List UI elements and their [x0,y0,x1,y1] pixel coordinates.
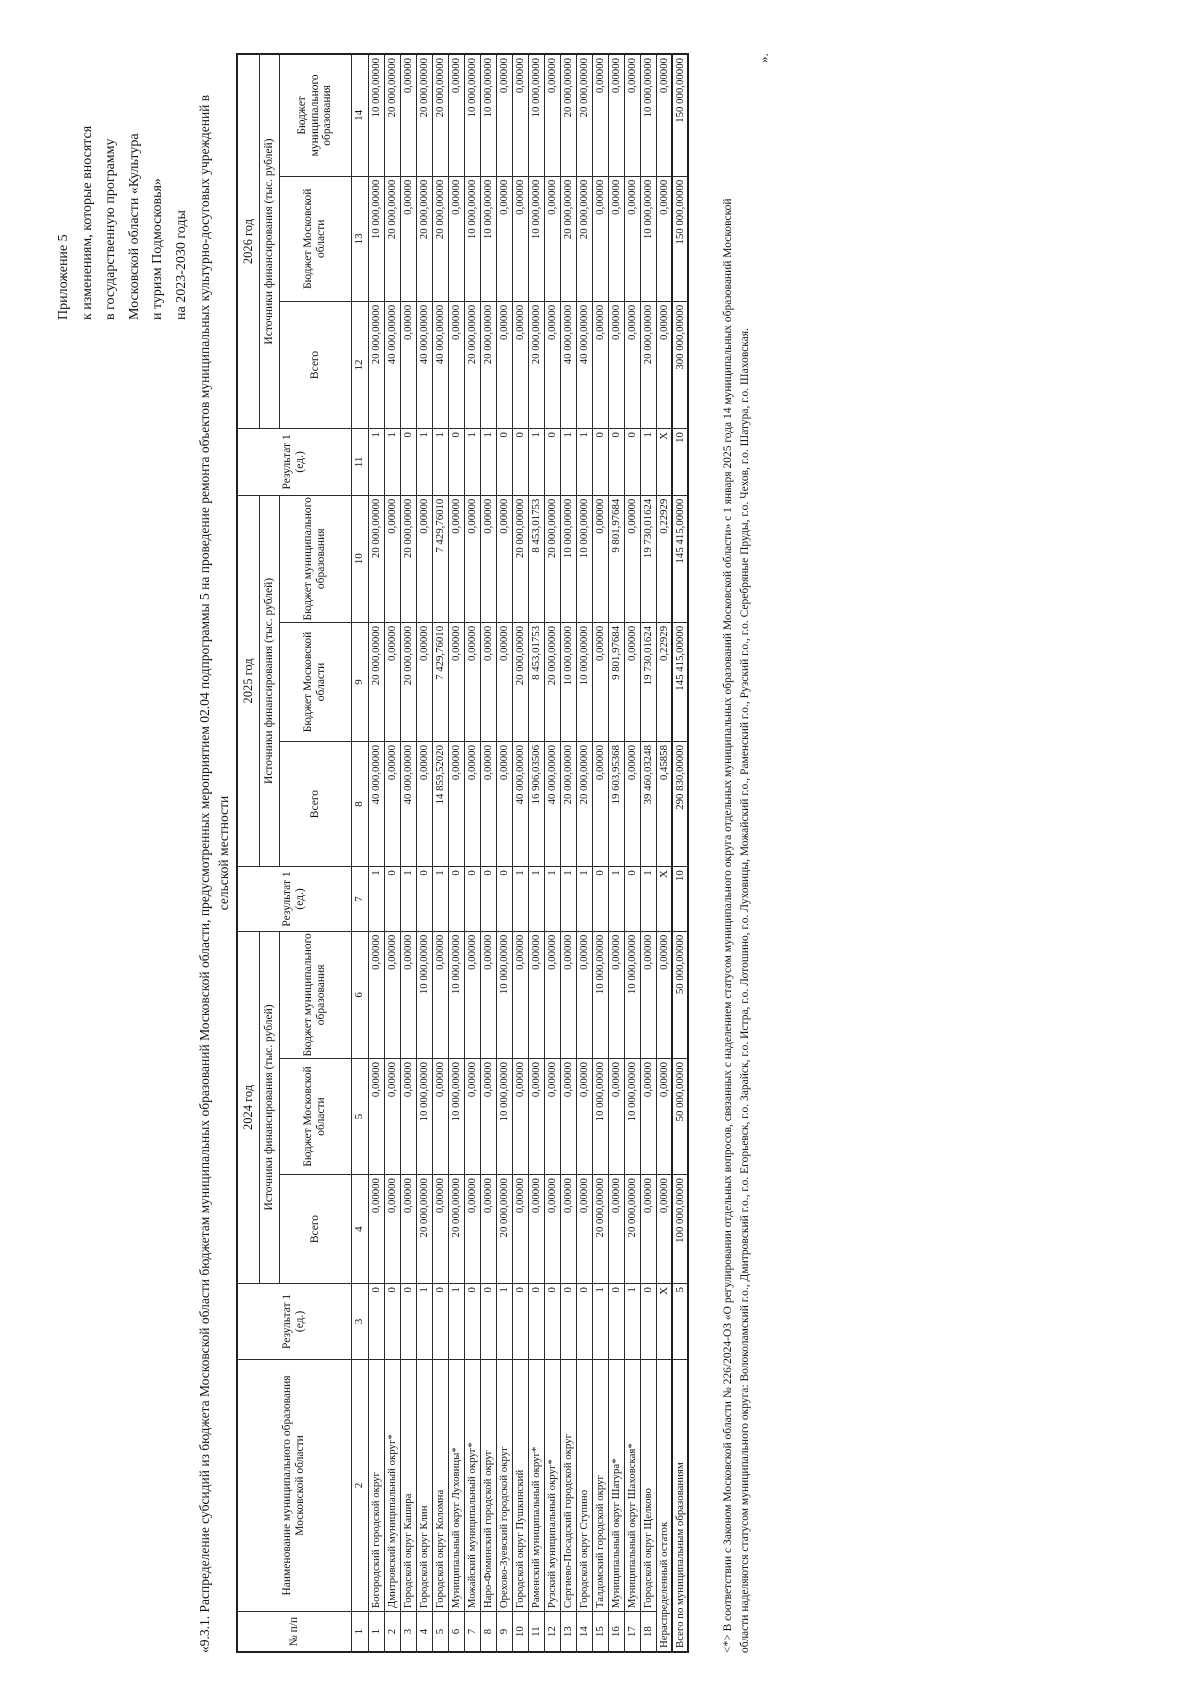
cell-value: 0,00000 [544,176,560,301]
appendix-line: в государственную программу [99,126,123,320]
cell-value: 1 [560,867,576,932]
cell-value: 0,00000 [656,54,672,176]
cell-value: 20 000,00000 [480,301,496,428]
appendix-line: на 2023-2030 годы [170,126,194,320]
municipality-name: Богородский городской округ [368,1359,384,1611]
cell-value: 1 [624,1284,640,1360]
cell-value: 0,00000 [432,1058,448,1174]
cell-value: 0,00000 [480,931,496,1058]
cell-value: 0 [544,429,560,496]
municipality-name: Городской округ Коломна [432,1359,448,1611]
cell-value: 0,22929 [656,495,672,622]
appendix-line: и туризм Подмосковья» [146,126,170,320]
cell-value: 0,00000 [560,1175,576,1284]
row-number: 14 [576,1612,592,1652]
row-number: 17 [624,1612,640,1652]
cell-value: 10 000,00000 [576,495,592,622]
municipality-name: Наро-Фоминский городской округ [480,1359,496,1611]
row-number: 11 [528,1612,544,1652]
cell-value: 0,00000 [512,301,528,428]
row-number: 2 [384,1612,400,1652]
table-row: 14Городской округ Ступино00,000000,00000… [576,54,592,1652]
cell-value: 0,00000 [624,54,640,176]
row-number: 8 [480,1612,496,1652]
col-header-total-2026: Всего [279,301,351,428]
cell-value: 0,00000 [368,931,384,1058]
cell-value: 10 000,00000 [560,495,576,622]
cell-value: 0,00000 [400,54,416,176]
cell-value: 0 [496,867,512,932]
cell-value: 10 000,00000 [592,1058,608,1174]
cell-value: 20 000,00000 [496,1175,512,1284]
table-header: № п/п Наименование муниципального образо… [237,54,368,1652]
cell-value: 1 [512,867,528,932]
cell-value: 10 000,00000 [496,1058,512,1174]
cell-value: 0,00000 [640,1058,656,1174]
cell-value: 0,00000 [464,742,480,867]
cell-value: 20 000,00000 [432,176,448,301]
row-number: 18 [640,1612,656,1652]
table-row: 4Городской округ Клин120 000,0000010 000… [416,54,432,1652]
cell-value: 20 000,00000 [416,176,432,301]
cell-value: 20 000,00000 [448,1175,464,1284]
cell-value: 0 [384,867,400,932]
cell-value: 1 [640,429,656,496]
cell-value: 20 000,00000 [432,54,448,176]
cell-value: 0,00000 [448,301,464,428]
cell-value: 20 000,00000 [544,622,560,741]
row-number: 3 [400,1612,416,1652]
cell-value: 1 [544,867,560,932]
cell-value: 0,00000 [464,1058,480,1174]
cell-value: 20 000,00000 [400,622,416,741]
municipality-name: Муниципальный округ Шатура* [608,1359,624,1611]
cell-value: 10 000,00000 [416,1058,432,1174]
municipality-name: Рузский муниципальный округ* [544,1359,560,1611]
appendix-line: к изменениям, которые вносятся [76,126,100,320]
row-number: 9 [496,1612,512,1652]
cell-value: 0,00000 [576,1058,592,1174]
cell-value: 0,00000 [464,931,480,1058]
column-number-cell: 7 [351,867,368,932]
cell-value: 20 000,00000 [464,301,480,428]
table-row: 10Городской округ Пушкинский00,000000,00… [512,54,528,1652]
cell-value: 1 [416,1284,432,1360]
cell-value: 0,00000 [544,1058,560,1174]
cell-value: 0,00000 [368,1175,384,1284]
cell-value: 150 000,00000 [672,176,688,301]
column-number-cell: 10 [351,495,368,622]
cell-value: 0,00000 [608,1175,624,1284]
cell-value: 20 000,00000 [368,495,384,622]
cell-value: 0,00000 [512,176,528,301]
cell-value: 0,22929 [656,622,672,741]
cell-value: 0 [624,867,640,932]
cell-value: 0,00000 [448,742,464,867]
table-body: 1Богородский городской округ00,000000,00… [368,54,688,1652]
table-row: 12Рузский муниципальный округ*00,000000,… [544,54,560,1652]
cell-value: 0,00000 [544,54,560,176]
cell-value: 10 000,00000 [448,1058,464,1174]
cell-value: 20 000,00000 [576,742,592,867]
cell-value: 1 [480,429,496,496]
cell-value: 10 000,00000 [496,931,512,1058]
cell-value: 0,00000 [512,54,528,176]
table-row: 13Сергиево-Посадский городской округ00,0… [560,54,576,1652]
cell-value: 0 [400,1284,416,1360]
cell-value: 20 000,00000 [400,495,416,622]
column-number-cell: 14 [351,54,368,176]
cell-value: 0,00000 [624,301,640,428]
municipality-name: Можайский муниципальный округ* [464,1359,480,1611]
page-sheet: Приложение 5 к изменениям, которые внося… [0,0,1200,1697]
cell-value: 0,00000 [464,495,480,622]
municipality-name: Городской округ Клин [416,1359,432,1611]
cell-value: 145 415,00000 [672,622,688,741]
col-header-num: № п/п [237,1612,351,1652]
row-number: 6 [448,1612,464,1652]
cell-value: 0,00000 [608,931,624,1058]
table-row: 8Наро-Фоминский городской округ00,000000… [480,54,496,1652]
cell-value: 0,00000 [592,742,608,867]
col-header-budget-mun-2026: Бюджет муниципального образования [279,54,351,176]
cell-value: 0,00000 [592,622,608,741]
table-row: 16Муниципальный округ Шатура*00,000000,0… [608,54,624,1652]
cell-value: 0,00000 [608,301,624,428]
cell-value: 40 000,00000 [512,742,528,867]
cell-value: 0 [464,1284,480,1360]
cell-value: 0,00000 [608,54,624,176]
cell-value: 0,00000 [656,301,672,428]
table-row: Всего по муниципальным образованиям5100 … [672,54,688,1652]
cell-value: 0 [384,1284,400,1360]
table-row: 18Городской округ Щелково00,000000,00000… [640,54,656,1652]
cell-value: 40 000,00000 [432,301,448,428]
cell-value: 1 [640,867,656,932]
column-number-cell: 9 [351,622,368,741]
table-row: 11Раменский муниципальный округ*00,00000… [528,54,544,1652]
municipality-name: Всего по муниципальным образованиям [672,1359,688,1652]
cell-value: 10 000,00000 [560,622,576,741]
col-header-sources-2025: Источники финансирования (тыс. рублей) [259,495,279,866]
municipality-name: Сергиево-Посадский городской округ [560,1359,576,1611]
row-number: 7 [464,1612,480,1652]
cell-value: 0,00000 [576,931,592,1058]
cell-value: 0 [480,867,496,932]
row-number: 12 [544,1612,560,1652]
cell-value: 0,00000 [400,931,416,1058]
cell-value: 10 000,00000 [640,176,656,301]
cell-value: 0,00000 [560,931,576,1058]
cell-value: 0 [608,1284,624,1360]
cell-value: 0 [464,867,480,932]
column-number-cell: 2 [351,1359,368,1611]
cell-value: 20 000,00000 [368,301,384,428]
cell-value: 40 000,00000 [544,742,560,867]
cell-value: 10 000,00000 [624,931,640,1058]
cell-value: 7 429,76010 [432,495,448,622]
cell-value: 8 453,01753 [528,622,544,741]
cell-value: 5 [672,1284,688,1360]
table-row: 5Городской округ Коломна00,000000,000000… [432,54,448,1652]
cell-value: 0,00000 [432,931,448,1058]
cell-value: 10 000,00000 [640,54,656,176]
col-header-name: Наименование муниципального образования … [237,1359,351,1611]
cell-value: 0,00000 [400,176,416,301]
cell-value: 0,00000 [624,495,640,622]
cell-value: 0 [368,1284,384,1360]
closing-quote-mark: ». [756,53,772,63]
cell-value: 20 000,00000 [576,54,592,176]
cell-value: 0,00000 [416,622,432,741]
cell-value: 10 000,00000 [576,622,592,741]
cell-value: 10 000,00000 [624,1058,640,1174]
row-number: 4 [416,1612,432,1652]
footnote-line-1: <*> В соответствии с Законом Московской … [720,35,737,1653]
cell-value: 150 000,00000 [672,54,688,176]
cell-value: 1 [560,429,576,496]
cell-value: 1 [608,867,624,932]
document-title-line2: сельской местности [216,53,232,1653]
cell-value: 10 000,00000 [528,54,544,176]
cell-value: 0,00000 [624,622,640,741]
cell-value: 50 000,00000 [672,931,688,1058]
column-number-cell: 12 [351,301,368,428]
col-header-budget-mun-2025: Бюджет муниципального образования [279,495,351,622]
cell-value: 7 429,76010 [432,622,448,741]
cell-value: 0,00000 [480,495,496,622]
cell-value: 0 [416,867,432,932]
cell-value: 0,00000 [464,1175,480,1284]
cell-value: 20 000,00000 [560,54,576,176]
cell-value: 0,00000 [512,1058,528,1174]
cell-value: 40 000,00000 [416,301,432,428]
col-header-result-2024: Результат 1 (ед.) [237,1284,351,1360]
footnote-block: <*> В соответствии с Законом Московской … [720,35,753,1653]
cell-value: 0,00000 [384,495,400,622]
row-number: 13 [560,1612,576,1652]
column-number-cell: 13 [351,176,368,301]
col-header-year-2025: 2025 год [237,495,259,866]
municipality-name: Орехово-Зуевский городской округ [496,1359,512,1611]
cell-value: X [656,1284,672,1360]
cell-value: 0,00000 [384,1175,400,1284]
cell-value: 1 [528,429,544,496]
col-header-total-2024: Всего [279,1175,351,1284]
cell-value: 0,00000 [544,301,560,428]
cell-value: 0 [592,429,608,496]
cell-value: 0,00000 [528,931,544,1058]
col-header-budget-mun-2024: Бюджет муниципального образования [279,931,351,1058]
cell-value: 0,45858 [656,742,672,867]
cell-value: 0,00000 [496,54,512,176]
cell-value: 0,00000 [416,495,432,622]
cell-value: 0,00000 [496,742,512,867]
col-header-total-2025: Всего [279,742,351,867]
cell-value: 20 000,00000 [624,1175,640,1284]
col-header-budget-mo-2026: Бюджет Московской области [279,176,351,301]
cell-value: 0,00000 [640,1175,656,1284]
cell-value: 0,00000 [496,495,512,622]
cell-value: 100 000,00000 [672,1175,688,1284]
cell-value: 300 000,00000 [672,301,688,428]
cell-value: 20 000,00000 [560,176,576,301]
column-number-cell: 11 [351,429,368,496]
cell-value: 40 000,00000 [576,301,592,428]
table-row: 3Городской округ Кашира00,000000,000000,… [400,54,416,1652]
cell-value: 10 000,00000 [464,176,480,301]
table-row: 15Талдомский городской округ120 000,0000… [592,54,608,1652]
cell-value: 0,00000 [544,1175,560,1284]
cell-value: 1 [576,867,592,932]
subsidy-table: № п/п Наименование муниципального образо… [236,53,689,1653]
col-header-sources-2026: Источники финансирования (тыс. рублей) [259,54,279,429]
cell-value: 0,00000 [448,622,464,741]
cell-value: 0 [432,1284,448,1360]
cell-value: 1 [432,867,448,932]
cell-value: 39 460,03248 [640,742,656,867]
cell-value: 20 000,00000 [576,176,592,301]
cell-value: 0,00000 [640,931,656,1058]
cell-value: 0,00000 [608,176,624,301]
cell-value: 10 000,00000 [416,931,432,1058]
table-row: 1Богородский городской округ00,000000,00… [368,54,384,1652]
cell-value: 0 [480,1284,496,1360]
cell-value: 0,00000 [656,1058,672,1174]
cell-value: 20 000,00000 [368,622,384,741]
cell-value: 0,00000 [384,622,400,741]
cell-value: 1 [576,429,592,496]
cell-value: 20 000,00000 [384,176,400,301]
cell-value: 0,00000 [448,176,464,301]
cell-value: 0 [496,429,512,496]
municipality-name: Дмитровский муниципальный округ* [384,1359,400,1611]
appendix-line: Приложение 5 [52,126,76,320]
cell-value: 0 [544,1284,560,1360]
cell-value: 10 000,00000 [368,176,384,301]
cell-value: 16 906,03506 [528,742,544,867]
column-number-cell: 8 [351,742,368,867]
cell-value: 8 453,01753 [528,495,544,622]
table-row: Нераспределенный остатокX0,000000,000000… [656,54,672,1652]
municipality-name: Муниципальный округ Шаховская* [624,1359,640,1611]
cell-value: 20 000,00000 [544,495,560,622]
appendix-block: Приложение 5 к изменениям, которые внося… [52,126,193,320]
cell-value: 9 801,97684 [608,495,624,622]
cell-value: 20 000,00000 [528,301,544,428]
cell-value: 40 000,00000 [384,301,400,428]
cell-value: 20 000,00000 [640,301,656,428]
cell-value: 10 000,00000 [480,176,496,301]
row-number: 5 [432,1612,448,1652]
cell-value: 0,00000 [480,1175,496,1284]
cell-value: 0,00000 [592,54,608,176]
table-row: 2Дмитровский муниципальный округ*00,0000… [384,54,400,1652]
cell-value: 0,00000 [656,176,672,301]
municipality-name: Городской округ Щелково [640,1359,656,1611]
cell-value: 0,00000 [496,176,512,301]
cell-value: 20 000,00000 [416,1175,432,1284]
appendix-line: Московской области «Культура [123,126,147,320]
column-number-cell: 5 [351,1058,368,1174]
cell-value: 0,00000 [496,622,512,741]
cell-value: 20 000,00000 [512,495,528,622]
col-header-result-2025: Результат 1 (ед.) [237,867,351,932]
cell-value: 0 [576,1284,592,1360]
footnote-line-2: области наделяются статусом муниципально… [737,35,754,1653]
cell-value: 1 [416,429,432,496]
municipality-name: Талдомский городской округ [592,1359,608,1611]
cell-value: 0,00000 [656,931,672,1058]
cell-value: 1 [384,429,400,496]
cell-value: 19 730,01624 [640,622,656,741]
cell-value: 1 [528,867,544,932]
municipality-name: Нераспределенный остаток [656,1359,672,1652]
cell-value: 0,00000 [496,301,512,428]
cell-value: 10 000,00000 [448,931,464,1058]
col-header-year-2024: 2024 год [237,931,259,1283]
col-header-budget-mo-2025: Бюджет Московской области [279,622,351,741]
cell-value: 40 000,00000 [560,301,576,428]
cell-value: 1 [448,1284,464,1360]
municipality-name: Городской округ Кашира [400,1359,416,1611]
cell-value: 0,00000 [432,1175,448,1284]
cell-value: 19 730,01624 [640,495,656,622]
cell-value: 0,00000 [400,301,416,428]
cell-value: 0,00000 [544,931,560,1058]
cell-value: 0,00000 [480,742,496,867]
cell-value: 40 000,00000 [368,742,384,867]
cell-value: 0 [560,1284,576,1360]
cell-value: 0,00000 [384,742,400,867]
cell-value: 290 830,00000 [672,742,688,867]
cell-value: 1 [400,867,416,932]
document-title: «9.3.1. Распределение субсидий из бюджет… [197,47,213,1653]
cell-value: 0,00000 [384,1058,400,1174]
cell-value: 0,00000 [448,54,464,176]
table-row: 6Муниципальный округ Луховицы*120 000,00… [448,54,464,1652]
cell-value: 0 [608,429,624,496]
table-row: 17Муниципальный округ Шаховская*120 000,… [624,54,640,1652]
cell-value: 9 801,97684 [608,622,624,741]
cell-value: 0,00000 [592,176,608,301]
cell-value: 145 415,00000 [672,495,688,622]
cell-value: 0,00000 [384,931,400,1058]
cell-value: 0,00000 [480,622,496,741]
cell-value: 0,00000 [592,495,608,622]
cell-value: 0,00000 [480,1058,496,1174]
column-number-cell: 6 [351,931,368,1058]
row-number: 10 [512,1612,528,1652]
cell-value: 20 000,00000 [560,742,576,867]
cell-value: 0 [528,1284,544,1360]
cell-value: 10 000,00000 [480,54,496,176]
cell-value: 0,00000 [416,742,432,867]
cell-value: 0,00000 [576,1175,592,1284]
col-header-budget-mo-2024: Бюджет Московской области [279,1058,351,1174]
row-number: 1 [368,1612,384,1652]
cell-value: 0 [512,1284,528,1360]
col-header-sources-2024: Источники финансирования (тыс. рублей) [259,931,279,1283]
column-number-cell: 3 [351,1284,368,1360]
cell-value: 0,00000 [592,301,608,428]
cell-value: 0,00000 [448,495,464,622]
cell-value: 0,00000 [656,1175,672,1284]
cell-value: 0,00000 [528,1175,544,1284]
cell-value: 0 [640,1284,656,1360]
municipality-name: Раменский муниципальный округ* [528,1359,544,1611]
cell-value: 0 [624,429,640,496]
